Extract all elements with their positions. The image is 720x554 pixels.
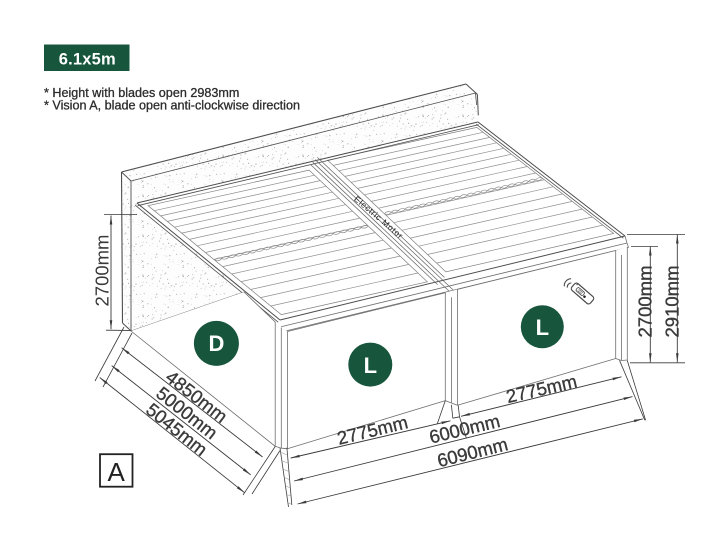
svg-text:2910mm: 2910mm: [661, 266, 682, 338]
svg-text:* Vision A, blade open anti-cl: * Vision A, blade open anti-clockwise di…: [44, 98, 300, 112]
svg-text:D: D: [208, 331, 224, 356]
svg-text:A: A: [108, 457, 126, 487]
svg-text:L: L: [536, 315, 549, 340]
svg-text:2700mm: 2700mm: [634, 266, 655, 338]
svg-text:L: L: [364, 353, 377, 378]
svg-text:6.1x5m: 6.1x5m: [59, 50, 116, 68]
svg-text:2700mm: 2700mm: [92, 235, 113, 307]
